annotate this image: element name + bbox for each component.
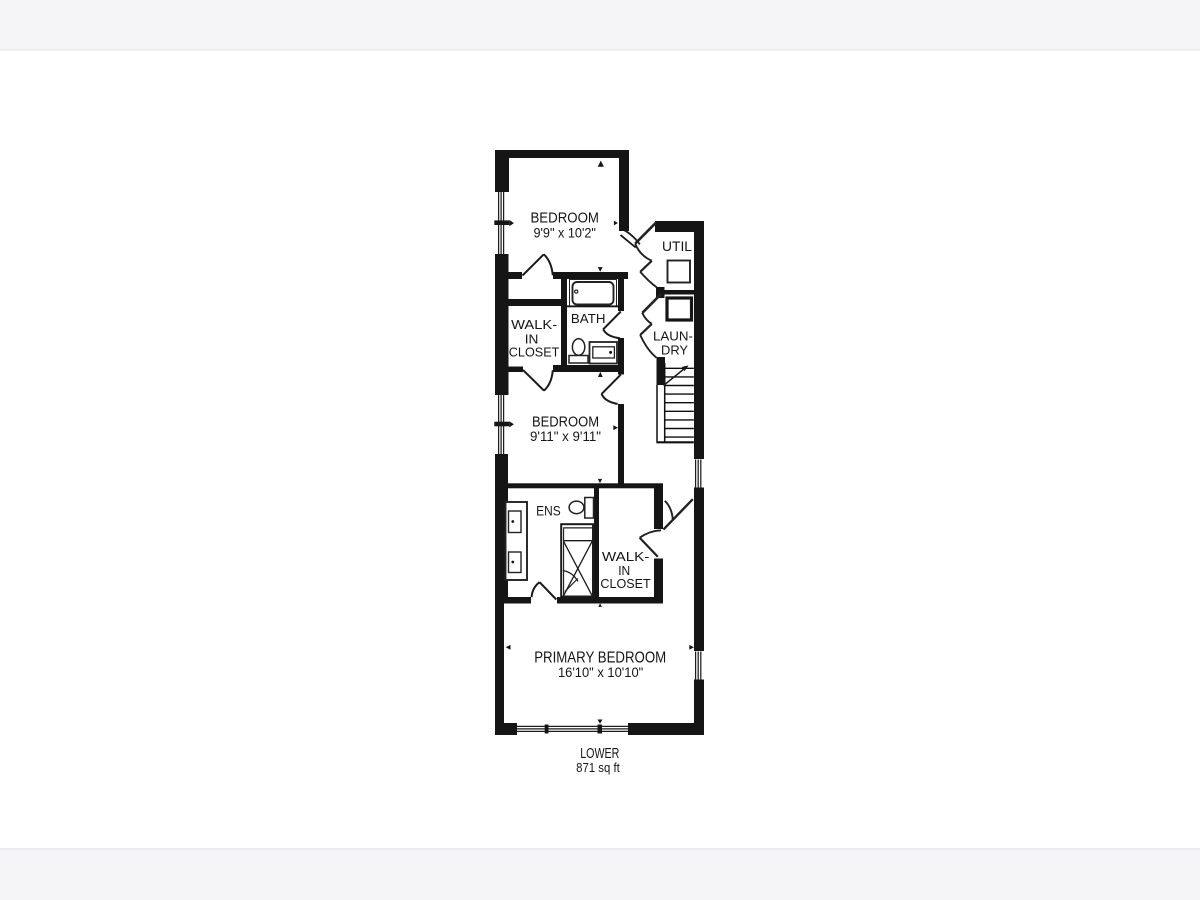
svg-text:CLOSET: CLOSET [509, 346, 560, 360]
svg-text:BATH: BATH [571, 312, 606, 326]
svg-text:LAUN-: LAUN- [653, 329, 693, 344]
svg-text:9'9" x 10'2": 9'9" x 10'2" [533, 225, 596, 241]
svg-text:DRY: DRY [661, 342, 688, 357]
svg-text:ENS: ENS [536, 503, 561, 519]
svg-text:UTIL: UTIL [662, 238, 692, 254]
svg-text:LOWER: LOWER [580, 746, 619, 762]
svg-text:CLOSET: CLOSET [600, 577, 651, 591]
svg-text:16'10" x 10'10": 16'10" x 10'10" [558, 664, 643, 680]
svg-text:WALK-: WALK- [511, 318, 557, 332]
svg-text:9'11" x 9'11": 9'11" x 9'11" [530, 428, 601, 444]
svg-text:IN: IN [618, 564, 630, 578]
svg-text:871 sq ft: 871 sq ft [576, 761, 620, 775]
svg-text:IN: IN [525, 332, 539, 346]
svg-text:WALK-: WALK- [602, 550, 650, 564]
